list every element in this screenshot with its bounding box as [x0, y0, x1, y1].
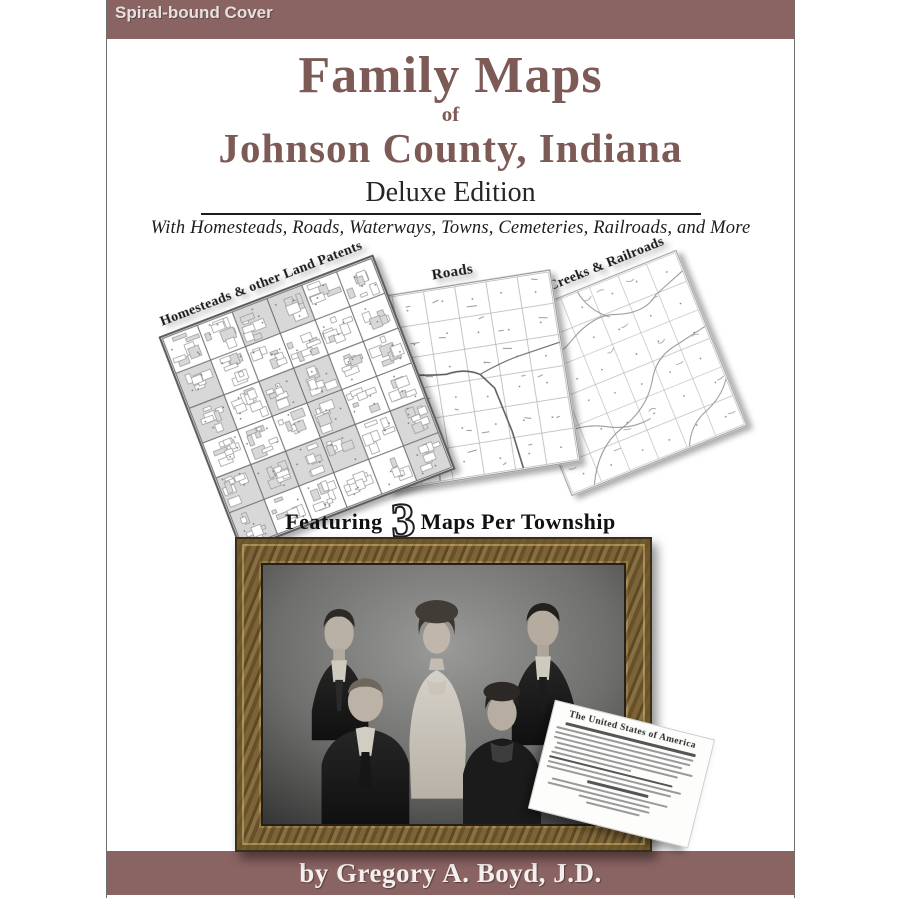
cover-type-label: Spiral-bound Cover: [107, 0, 794, 23]
title-line2: Johnson County, Indiana: [107, 126, 794, 170]
cover-type-banner: Spiral-bound Cover: [107, 0, 794, 39]
book-cover-image: Spiral-bound Cover Family Maps of Johnso…: [0, 0, 900, 900]
title-of: of: [107, 104, 794, 124]
featuring-line: Featuring3Maps Per Township: [107, 486, 794, 541]
title-divider: [201, 213, 701, 215]
featuring-suffix: Maps Per Township: [421, 509, 616, 534]
cover-page: Spiral-bound Cover Family Maps of Johnso…: [106, 0, 795, 898]
title-block: Family Maps of Johnson County, Indiana D…: [107, 48, 794, 239]
featuring-prefix: Featuring: [285, 509, 382, 534]
author-label: by Gregory A. Boyd, J.D.: [299, 858, 602, 889]
title-line1: Family Maps: [107, 48, 794, 104]
author-banner: by Gregory A. Boyd, J.D.: [107, 851, 794, 895]
subtitle: With Homesteads, Roads, Waterways, Towns…: [107, 218, 794, 239]
edition-label: Deluxe Edition: [107, 178, 794, 208]
